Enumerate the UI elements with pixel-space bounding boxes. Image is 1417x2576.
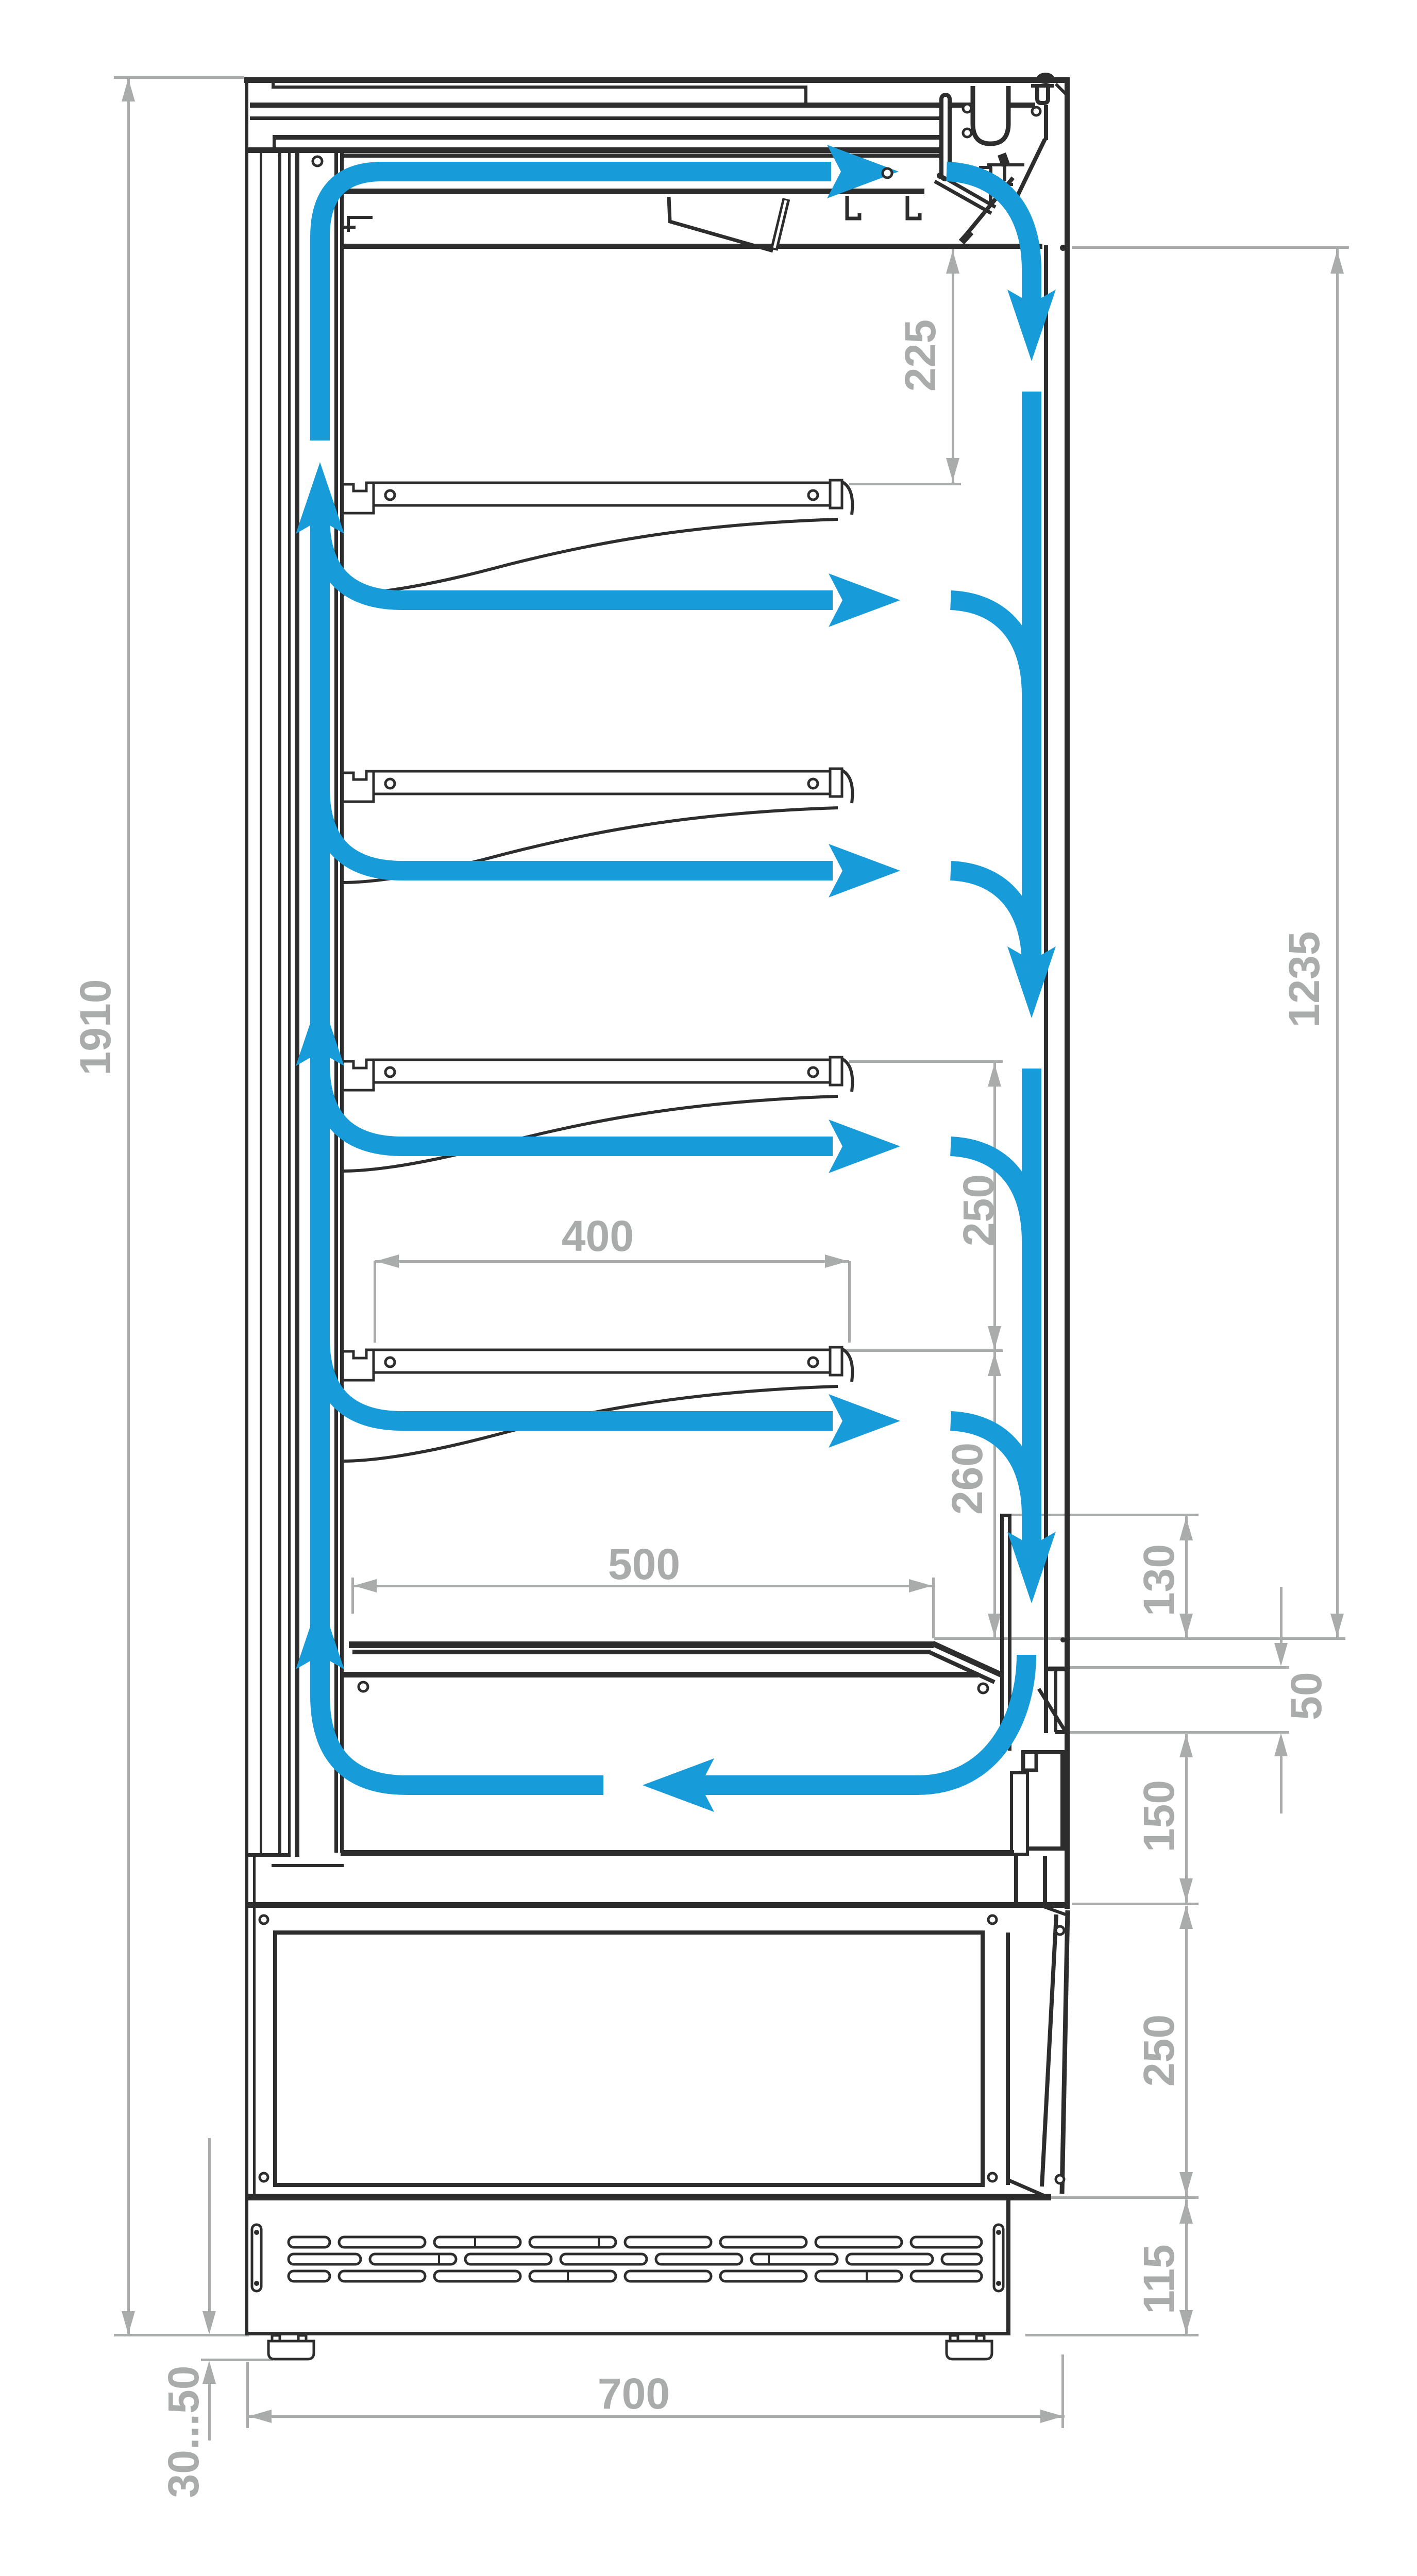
svg-text:250: 250 xyxy=(954,1174,1003,1246)
svg-text:115: 115 xyxy=(1135,2244,1183,2314)
svg-text:260: 260 xyxy=(943,1443,991,1515)
svg-text:225: 225 xyxy=(896,319,944,392)
svg-text:130: 130 xyxy=(1135,1544,1183,1616)
svg-text:150: 150 xyxy=(1135,1780,1183,1852)
svg-text:30...50: 30...50 xyxy=(159,2366,208,2498)
svg-text:500: 500 xyxy=(608,1540,680,1588)
svg-text:1235: 1235 xyxy=(1280,931,1328,1028)
svg-text:400: 400 xyxy=(562,1212,634,1260)
svg-text:1910: 1910 xyxy=(71,979,120,1076)
svg-text:50: 50 xyxy=(1282,1672,1330,1720)
svg-text:250: 250 xyxy=(1135,2014,1183,2087)
svg-text:700: 700 xyxy=(598,2369,670,2418)
